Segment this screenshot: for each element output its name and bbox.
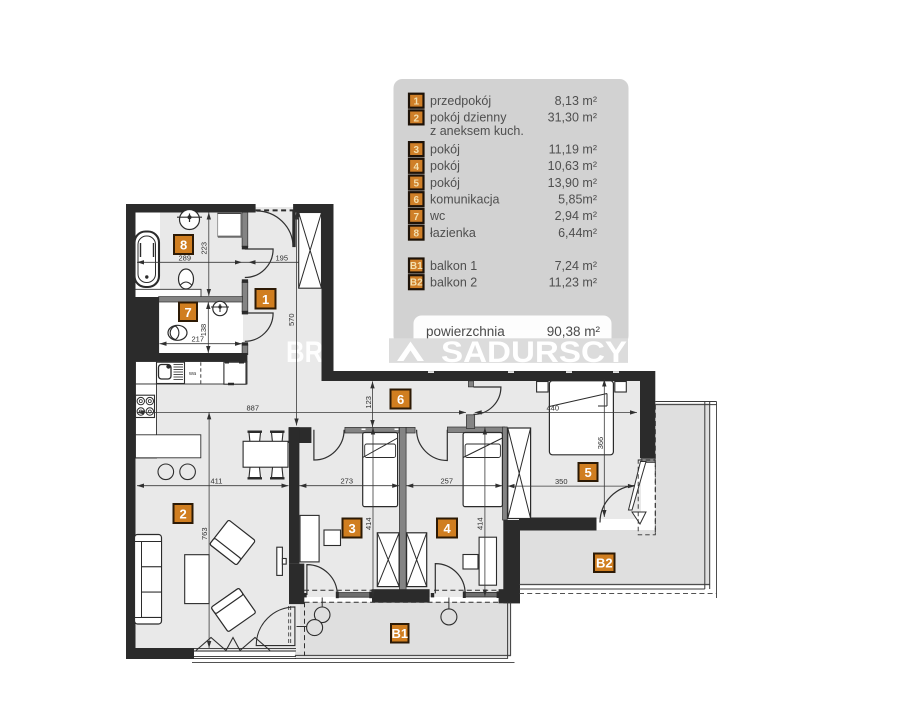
svg-text:1: 1 bbox=[414, 97, 420, 108]
svg-text:123: 123 bbox=[364, 396, 373, 409]
svg-text:6,44m²: 6,44m² bbox=[558, 226, 597, 240]
svg-text:6: 6 bbox=[414, 195, 420, 206]
svg-text:balkon 2: balkon 2 bbox=[430, 276, 477, 290]
svg-text:763: 763 bbox=[200, 527, 209, 540]
svg-text:BRACIA: BRACIA bbox=[286, 336, 386, 369]
svg-text:257: 257 bbox=[441, 477, 454, 486]
svg-text:6: 6 bbox=[397, 392, 404, 407]
svg-text:366: 366 bbox=[596, 437, 605, 450]
svg-text:195: 195 bbox=[276, 253, 289, 262]
svg-text:z aneksem kuch.: z aneksem kuch. bbox=[430, 124, 524, 138]
svg-text:138: 138 bbox=[199, 324, 208, 337]
svg-text:B1: B1 bbox=[410, 261, 423, 272]
svg-text:7,24 m²: 7,24 m² bbox=[555, 259, 597, 273]
svg-text:1: 1 bbox=[262, 292, 269, 307]
svg-text:2: 2 bbox=[179, 507, 186, 522]
svg-text:3: 3 bbox=[348, 521, 355, 536]
svg-text:8,13 m²: 8,13 m² bbox=[555, 94, 597, 108]
svg-text:5,85m²: 5,85m² bbox=[558, 193, 597, 207]
svg-text:13,90 m²: 13,90 m² bbox=[548, 176, 597, 190]
svg-text:łazienka: łazienka bbox=[430, 226, 476, 240]
svg-text:273: 273 bbox=[341, 477, 354, 486]
svg-text:5: 5 bbox=[414, 179, 420, 190]
svg-text:11,19 m²: 11,19 m² bbox=[549, 142, 597, 156]
svg-text:887: 887 bbox=[247, 403, 260, 412]
svg-text:SADURSCY: SADURSCY bbox=[441, 336, 627, 369]
svg-text:B2: B2 bbox=[410, 278, 423, 289]
svg-text:31,30 m²: 31,30 m² bbox=[548, 111, 597, 125]
svg-text:4: 4 bbox=[414, 162, 420, 173]
svg-text:pokój: pokój bbox=[430, 142, 460, 156]
svg-text:10,63 m²: 10,63 m² bbox=[548, 159, 597, 173]
svg-text:2,94 m²: 2,94 m² bbox=[555, 209, 597, 223]
svg-text:wa: wa bbox=[188, 371, 197, 377]
svg-text:pokój: pokój bbox=[430, 176, 460, 190]
svg-text:komunikacja: komunikacja bbox=[430, 193, 500, 207]
svg-text:5: 5 bbox=[584, 465, 591, 480]
svg-text:przedpokój: przedpokój bbox=[430, 94, 491, 108]
svg-text:B2: B2 bbox=[596, 555, 613, 570]
svg-text:7: 7 bbox=[184, 305, 191, 320]
svg-text:440: 440 bbox=[547, 403, 560, 412]
svg-text:350: 350 bbox=[555, 477, 568, 486]
svg-text:223: 223 bbox=[200, 242, 209, 255]
svg-text:414: 414 bbox=[364, 517, 373, 530]
svg-text:wc: wc bbox=[429, 209, 445, 223]
svg-text:pokój: pokój bbox=[430, 159, 460, 173]
svg-text:8: 8 bbox=[180, 238, 187, 253]
svg-text:411: 411 bbox=[211, 477, 223, 486]
svg-text:4: 4 bbox=[443, 521, 451, 536]
svg-text:414: 414 bbox=[476, 517, 485, 530]
svg-text:570: 570 bbox=[287, 313, 296, 326]
svg-text:B1: B1 bbox=[391, 626, 408, 641]
svg-text:11,23 m²: 11,23 m² bbox=[549, 276, 597, 290]
svg-text:balkon 1: balkon 1 bbox=[430, 259, 477, 273]
svg-text:2: 2 bbox=[414, 113, 420, 124]
svg-text:3: 3 bbox=[414, 145, 420, 156]
svg-text:7: 7 bbox=[414, 212, 420, 223]
svg-text:pokój dzienny: pokój dzienny bbox=[430, 111, 507, 125]
svg-text:8: 8 bbox=[414, 229, 420, 240]
